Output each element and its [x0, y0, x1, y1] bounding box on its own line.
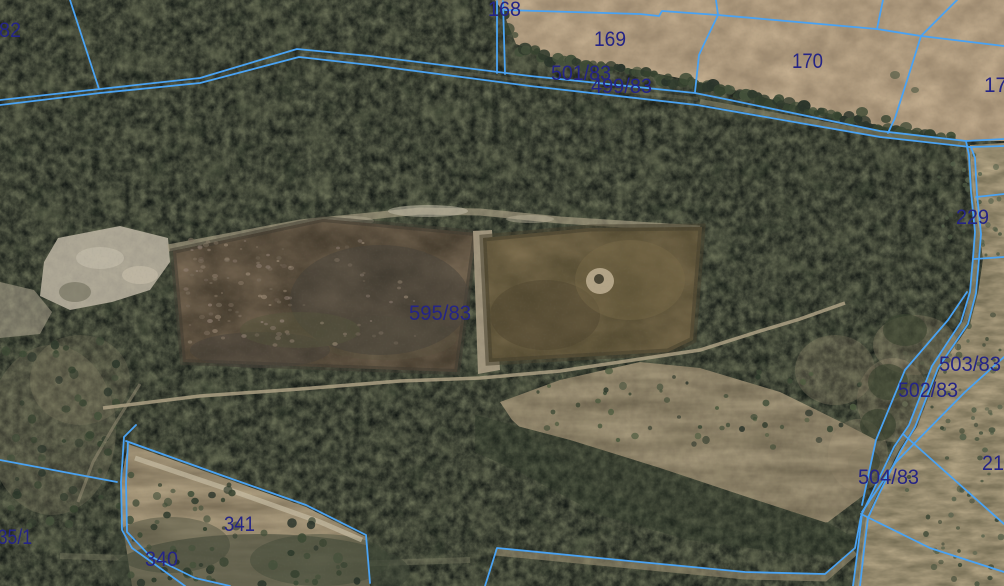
svg-text:17: 17: [984, 73, 1004, 97]
svg-text:340: 340: [145, 547, 178, 571]
svg-text:503/83: 503/83: [939, 352, 1001, 376]
svg-text:170: 170: [792, 49, 823, 73]
svg-text:21: 21: [982, 451, 1004, 475]
svg-text:595/83: 595/83: [409, 301, 471, 325]
svg-text:168: 168: [488, 0, 521, 21]
svg-text:504/83: 504/83: [858, 465, 919, 489]
svg-text:341: 341: [224, 512, 255, 536]
svg-text:169: 169: [594, 27, 626, 51]
svg-text:502/83: 502/83: [898, 378, 958, 402]
svg-text:499/83: 499/83: [591, 74, 652, 98]
svg-text:82: 82: [0, 18, 21, 42]
svg-text:229: 229: [956, 205, 989, 229]
svg-text:335/1: 335/1: [0, 525, 32, 549]
